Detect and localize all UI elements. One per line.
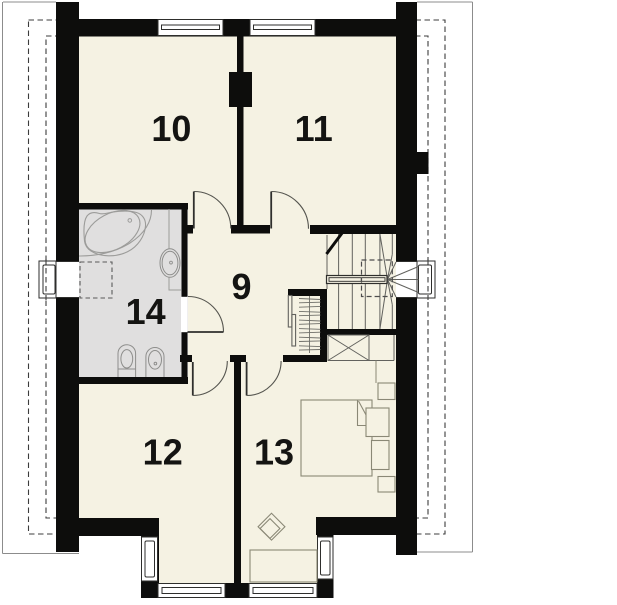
svg-text:11: 11 [295,108,333,149]
svg-text:13: 13 [254,432,294,473]
svg-text:14: 14 [126,291,166,332]
svg-text:9: 9 [231,266,251,307]
svg-text:10: 10 [151,108,191,149]
svg-text:12: 12 [143,432,183,473]
